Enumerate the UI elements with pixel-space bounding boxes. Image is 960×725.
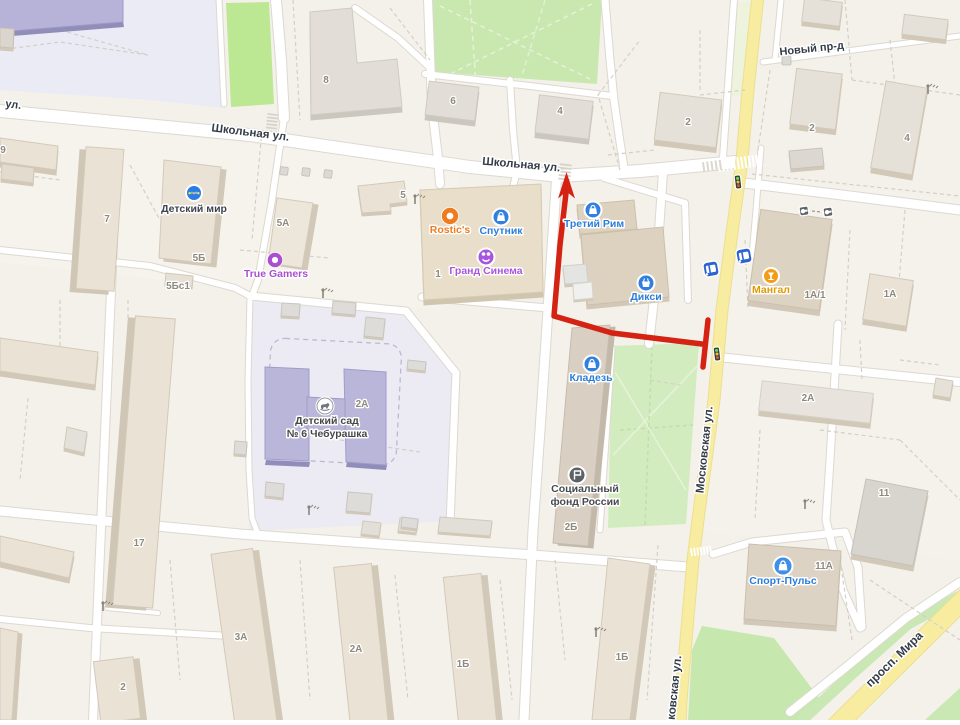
svg-text:17: 17	[133, 538, 145, 549]
svg-text:3А: 3А	[235, 632, 248, 643]
svg-text:4: 4	[904, 133, 910, 144]
svg-text:7: 7	[104, 214, 110, 225]
svg-text:Третий Рим: Третий Рим	[564, 218, 625, 230]
svg-text:ул.: ул.	[5, 98, 22, 112]
svg-text:11: 11	[879, 488, 890, 499]
svg-text:1Б: 1Б	[457, 659, 470, 670]
svg-text:Социальный: Социальный	[551, 483, 619, 495]
svg-text:1А: 1А	[884, 289, 897, 300]
svg-text:Спутник: Спутник	[479, 225, 523, 237]
svg-text:Мангал: Мангал	[752, 284, 790, 296]
svg-text:5Бс1: 5Бс1	[166, 281, 190, 292]
svg-text:2А: 2А	[356, 399, 369, 410]
svg-text:1Б: 1Б	[616, 652, 629, 663]
svg-text:№ 6 Чебурашка: № 6 Чебурашка	[287, 428, 368, 440]
svg-text:Дикси: Дикси	[630, 291, 661, 303]
svg-text:2Б: 2Б	[565, 522, 578, 533]
svg-text:2А: 2А	[350, 644, 363, 655]
svg-text:Кладезь: Кладезь	[569, 372, 613, 384]
svg-text:5Б: 5Б	[193, 253, 206, 264]
svg-text:фонд России: фонд России	[551, 496, 620, 508]
svg-text:2: 2	[809, 123, 815, 134]
svg-text:Гранд Синема: Гранд Синема	[449, 265, 522, 277]
svg-text:1А/1: 1А/1	[804, 290, 826, 301]
svg-text:2: 2	[120, 682, 126, 693]
svg-text:Спорт-Пульс: Спорт-Пульс	[749, 575, 817, 587]
svg-text:11А: 11А	[815, 561, 833, 572]
svg-text:Rostic's: Rostic's	[430, 224, 471, 236]
svg-text:Детский мир: Детский мир	[161, 203, 227, 215]
svg-text:5: 5	[400, 190, 406, 201]
svg-text:2: 2	[685, 117, 691, 128]
svg-text:6: 6	[450, 96, 456, 107]
svg-text:4: 4	[557, 106, 563, 117]
svg-text:8: 8	[323, 75, 329, 86]
svg-text:5А: 5А	[277, 218, 290, 229]
svg-text:2А: 2А	[802, 393, 815, 404]
svg-text:True Gamers: True Gamers	[244, 268, 308, 280]
svg-text:9: 9	[0, 145, 6, 156]
svg-text:1: 1	[435, 269, 441, 280]
svg-text:Детский сад: Детский сад	[295, 415, 359, 427]
